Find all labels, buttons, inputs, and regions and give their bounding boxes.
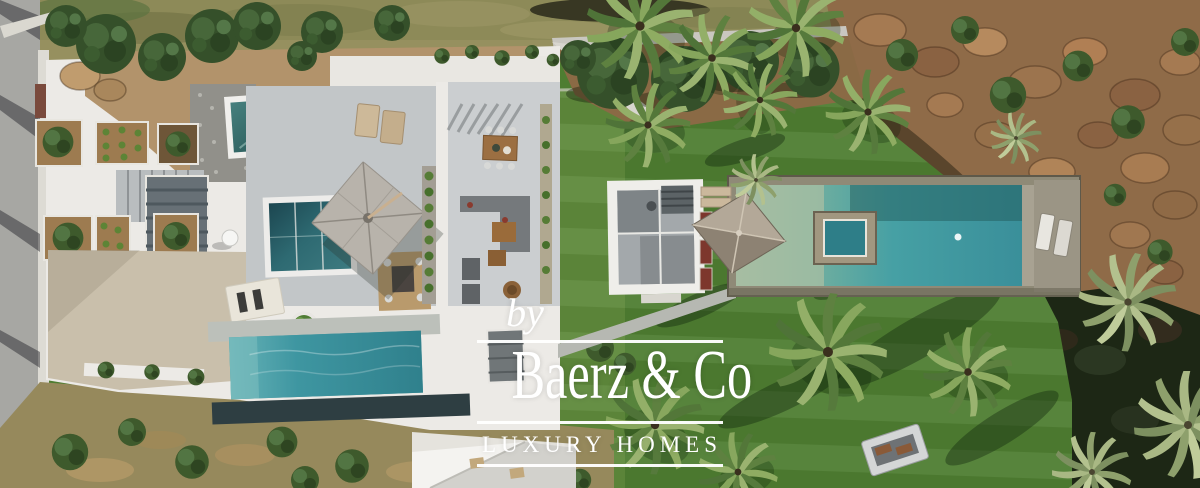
pool-ball: [955, 234, 962, 241]
courtyard: [48, 250, 246, 390]
jacuzzi-island: [814, 212, 876, 264]
watermark-by: by: [477, 293, 573, 333]
watermark-tagline: LUXURY HOMES: [467, 431, 733, 459]
watermark-brand: Baerz & Co: [511, 341, 688, 411]
pool-house: [607, 179, 705, 304]
roof-dining-set: [482, 126, 517, 170]
main-villa: [36, 2, 560, 430]
pool-end-deck: [1034, 180, 1080, 292]
villa-pool: [229, 331, 423, 400]
aerial-photo-luxury-villa: by Baerz & Co LUXURY HOMES: [0, 0, 1200, 488]
aerial-photo: [0, 0, 1200, 488]
watermark-rule-middle: [477, 421, 723, 424]
roof-parapet: [436, 82, 448, 314]
watermark-rule-bottom: [477, 464, 723, 467]
